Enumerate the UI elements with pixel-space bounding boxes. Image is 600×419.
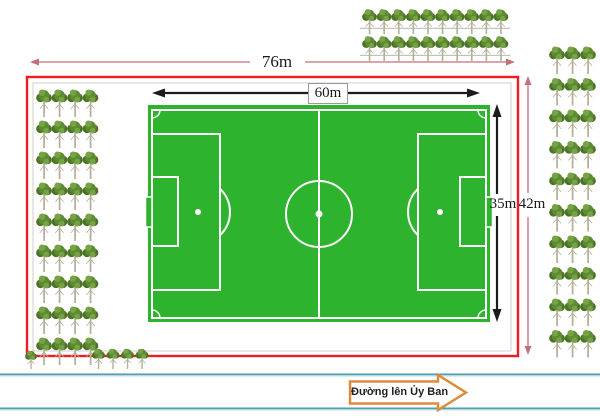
tree-icon [479,36,494,61]
tree-icon [464,36,479,61]
tree-icon [580,46,596,74]
center-spot [316,211,323,218]
tree-icon [83,213,99,241]
tree-icon [549,204,565,232]
outer-height-label: 42m [517,195,547,213]
tree-icon [377,36,392,61]
tree-icon [52,244,68,272]
tree-icon [450,36,465,61]
tree-icon [36,120,52,148]
tree-icon [406,36,421,61]
tree-icon [494,9,509,34]
tree-icon [565,204,581,232]
tree-icon [36,182,52,210]
tree-icon [549,267,565,295]
tree-icon [435,9,450,34]
tree-icon [421,36,436,61]
tree-icon [549,330,565,358]
tree-icon [549,235,565,263]
tree-icon [580,109,596,137]
tree-icon [136,349,149,369]
tree-icon [36,151,52,179]
site-plan-diagram: 76m 60m 35m 42m Đường lên Ủy Ban [0,0,600,419]
tree-icon [362,36,377,61]
tree-icon [391,36,406,61]
tree-icon [549,141,565,169]
tree-icon [83,151,99,179]
tree-icon [580,298,596,326]
tree-icon [36,89,52,117]
tree-icon [67,244,83,272]
tree-icon [362,9,377,34]
tree-icon [549,78,565,106]
tree-icon [52,182,68,210]
dim-arrow-35m [493,104,502,322]
tree-icon [107,349,120,369]
tree-icon [121,349,134,369]
tree-icon [580,141,596,169]
tree-icon [565,330,581,358]
tree-icon [67,275,83,303]
football-field [146,105,493,322]
tree-icon [52,89,68,117]
road-lines [0,374,600,411]
tree-icon [565,172,581,200]
tree-icon [406,9,421,34]
road-sign-label: Đường lên Ủy Ban [351,382,437,403]
tree-icon [67,89,83,117]
tree-icon [565,267,581,295]
left-goal [146,197,153,227]
tree-icon [421,9,436,34]
tree-icon [450,9,465,34]
tree-icon [83,275,99,303]
tree-icon [36,275,52,303]
tree-icon [83,244,99,272]
tree-icon [52,151,68,179]
tree-icon [565,78,581,106]
tree-icon [435,36,450,61]
tree-icon [391,9,406,34]
outer-width-label: 76m [248,52,306,71]
tree-icon [83,182,99,210]
tree-icon [565,141,581,169]
tree-icon [377,9,392,34]
tree-icon [565,109,581,137]
tree-icon [52,120,68,148]
tree-icon [83,120,99,148]
tree-icon [464,9,479,34]
tree-icon [580,204,596,232]
tree-icon [36,306,52,334]
tree-icon [580,78,596,106]
tree-icon [494,36,509,61]
tree-icon [83,306,99,334]
tree-icon [52,275,68,303]
tree-icon [52,306,68,334]
tree-icon [565,298,581,326]
dim-arrow-42m [525,76,532,355]
tree-icon [580,267,596,295]
tree-icon [549,46,565,74]
tree-icon [580,330,596,358]
tree-icon [549,172,565,200]
field-height-label: 35m [488,195,518,213]
tree-icon [580,235,596,263]
tree-icon [549,109,565,137]
field-width-label: 60m [308,83,348,104]
tree-icon [565,46,581,74]
tree-icon [67,213,83,241]
tree-icon [479,9,494,34]
tree-icon [67,182,83,210]
tree-icon [92,349,105,369]
tree-icon [36,213,52,241]
tree-icon [36,244,52,272]
tree-icon [580,172,596,200]
tree-icon [67,306,83,334]
tree-icon [83,89,99,117]
tree-icon [67,151,83,179]
tree-icon [67,120,83,148]
tree-icon [52,213,68,241]
tree-icon [549,298,565,326]
tree-icon [565,235,581,263]
